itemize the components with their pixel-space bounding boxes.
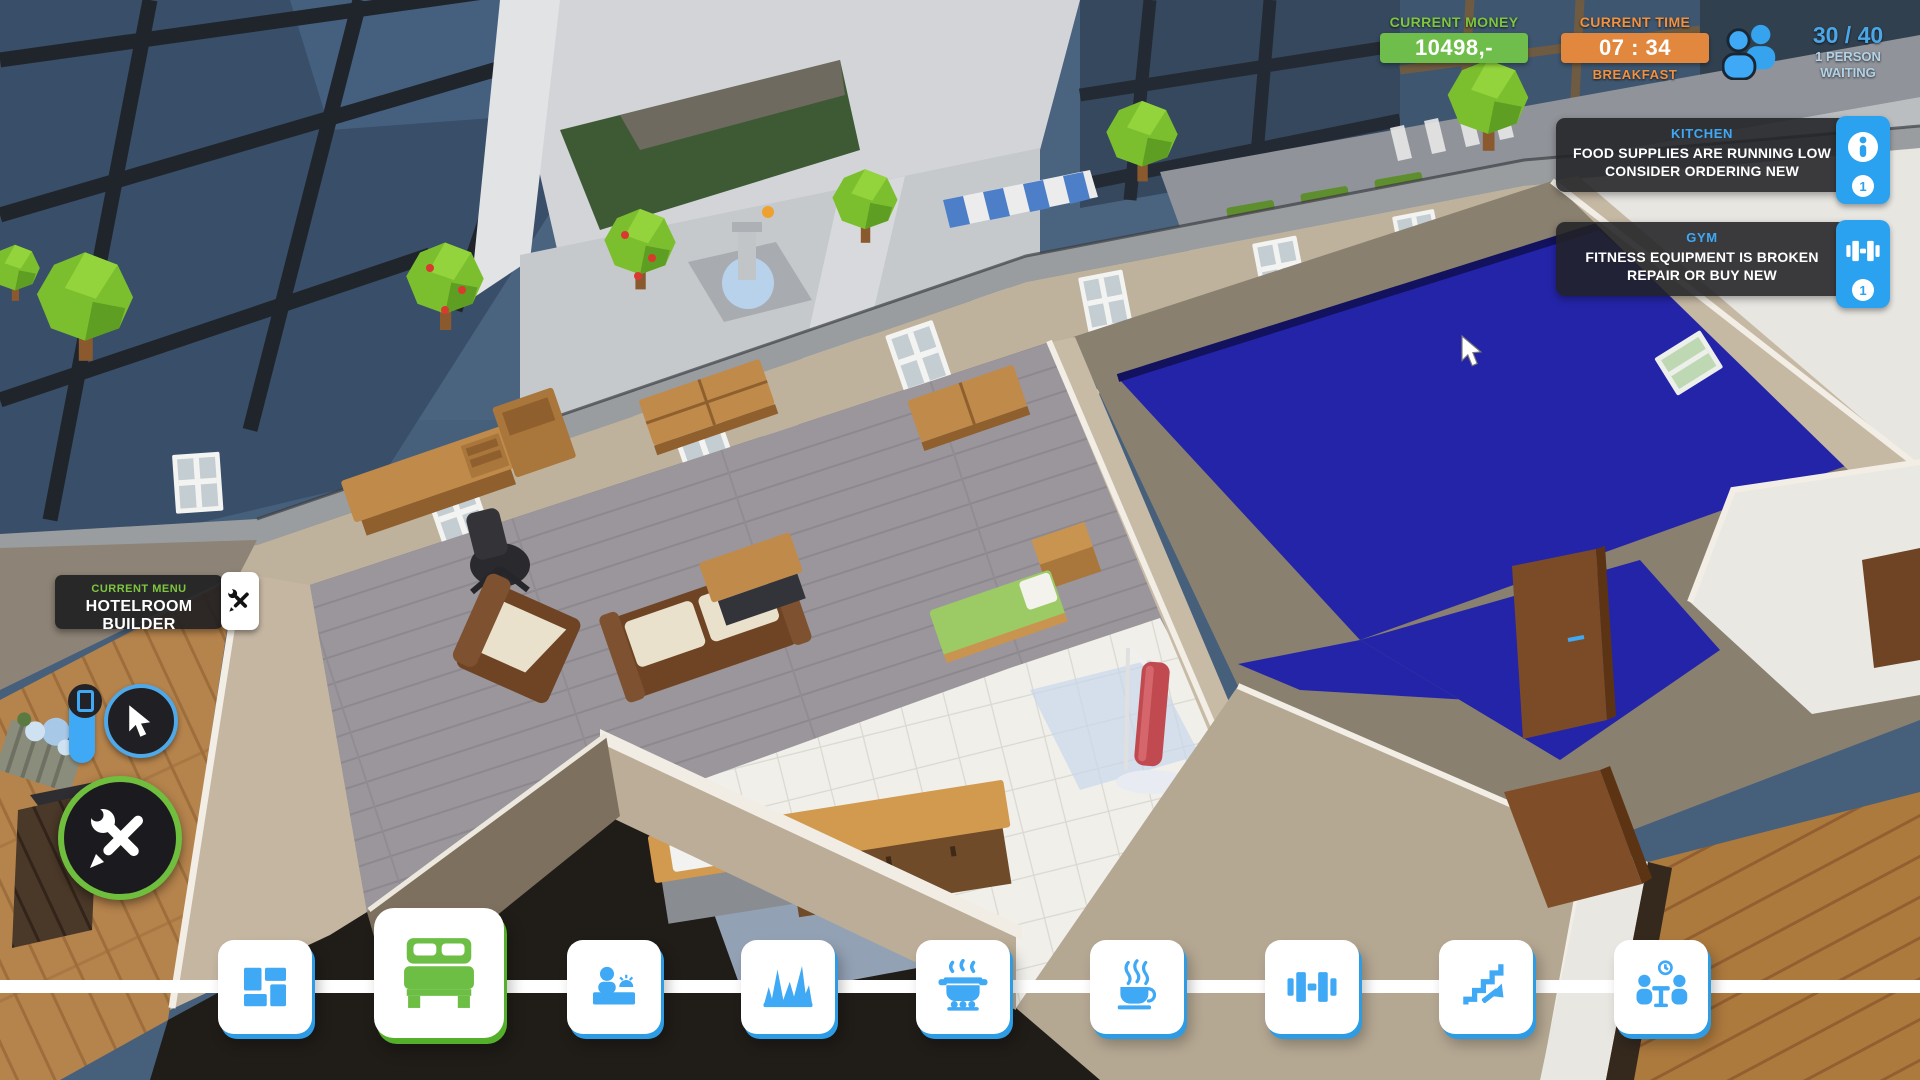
notification-line: FITNESS EQUIPMENT IS BROKEN xyxy=(1564,248,1840,266)
info-icon xyxy=(1846,130,1880,164)
dumbbell-icon xyxy=(1284,959,1340,1015)
notification-line: FOOD SUPPLIES ARE RUNNING LOW xyxy=(1564,144,1840,162)
build-menu-button[interactable] xyxy=(58,776,182,900)
dumbbell-icon xyxy=(1844,234,1882,268)
toolbar-button-reception[interactable] xyxy=(567,940,661,1034)
current-menu-label: CURRENT MENU xyxy=(55,583,223,595)
notification-line: CONSIDER ORDERING NEW xyxy=(1564,162,1840,180)
current-menu-value: HOTELROOM BUILDER xyxy=(55,598,223,634)
time-value: 07 : 34 xyxy=(1561,33,1709,63)
tools-icon xyxy=(88,806,152,870)
door xyxy=(1512,546,1616,739)
door-slider-icon xyxy=(77,690,94,712)
notification-kitchen-button[interactable]: 1 xyxy=(1836,116,1890,204)
notification-badge: 1 xyxy=(1852,175,1874,197)
toolbar-button-bedroom[interactable] xyxy=(374,908,504,1038)
floorplan-icon xyxy=(237,959,293,1015)
notification-badge: 1 xyxy=(1852,279,1874,301)
tools-icon xyxy=(227,588,253,614)
occupancy-count: 30 / 40 xyxy=(1790,22,1906,49)
money-display: CURRENT MONEY 10498,- xyxy=(1354,14,1554,63)
bed-icon xyxy=(396,930,482,1016)
notification-category: KITCHEN xyxy=(1564,126,1840,141)
occupancy-line2: WAITING xyxy=(1790,65,1906,81)
cursor-icon xyxy=(126,704,156,738)
toolbar-button-garden[interactable] xyxy=(741,940,835,1034)
coffee-cup-icon xyxy=(1109,959,1165,1015)
select-tool-button[interactable] xyxy=(104,684,178,758)
occupancy-line1: 1 PERSON xyxy=(1790,49,1906,65)
toolbar-button-kitchen[interactable] xyxy=(916,940,1010,1034)
current-menu-button[interactable] xyxy=(221,572,259,630)
toolbar-button-stairs[interactable] xyxy=(1439,940,1533,1034)
notification-kitchen: KITCHEN FOOD SUPPLIES ARE RUNNING LOW CO… xyxy=(1556,118,1848,192)
slider-knob[interactable] xyxy=(68,684,102,718)
reception-icon xyxy=(586,959,642,1015)
toolbar-button-floorplan[interactable] xyxy=(218,940,312,1034)
diner-table-icon xyxy=(1633,959,1689,1015)
toolbar-button-cafe[interactable] xyxy=(1090,940,1184,1034)
people-icon xyxy=(1722,22,1784,80)
notification-gym: GYM FITNESS EQUIPMENT IS BROKEN REPAIR O… xyxy=(1556,222,1848,296)
occupancy-display: 30 / 40 1 PERSON WAITING xyxy=(1722,22,1906,82)
notification-category: GYM xyxy=(1564,230,1840,245)
toolbar-button-restaurant[interactable] xyxy=(1614,940,1708,1034)
money-label: CURRENT MONEY xyxy=(1354,14,1554,30)
game-screen: CURRENT MONEY 10498,- CURRENT TIME 07 : … xyxy=(0,0,1920,1080)
grass-icon xyxy=(760,959,816,1015)
toolbar-button-gym[interactable] xyxy=(1265,940,1359,1034)
notification-line: REPAIR OR BUY NEW xyxy=(1564,266,1840,284)
time-display: CURRENT TIME 07 : 34 BREAKFAST xyxy=(1561,14,1709,82)
stairs-icon xyxy=(1458,959,1514,1015)
current-menu-panel: CURRENT MENU HOTELROOM BUILDER xyxy=(55,575,223,629)
time-period: BREAKFAST xyxy=(1561,67,1709,82)
notification-gym-button[interactable]: 1 xyxy=(1836,220,1890,308)
time-label: CURRENT TIME xyxy=(1561,14,1709,30)
money-value: 10498,- xyxy=(1380,33,1528,63)
cooking-pot-icon xyxy=(935,959,991,1015)
